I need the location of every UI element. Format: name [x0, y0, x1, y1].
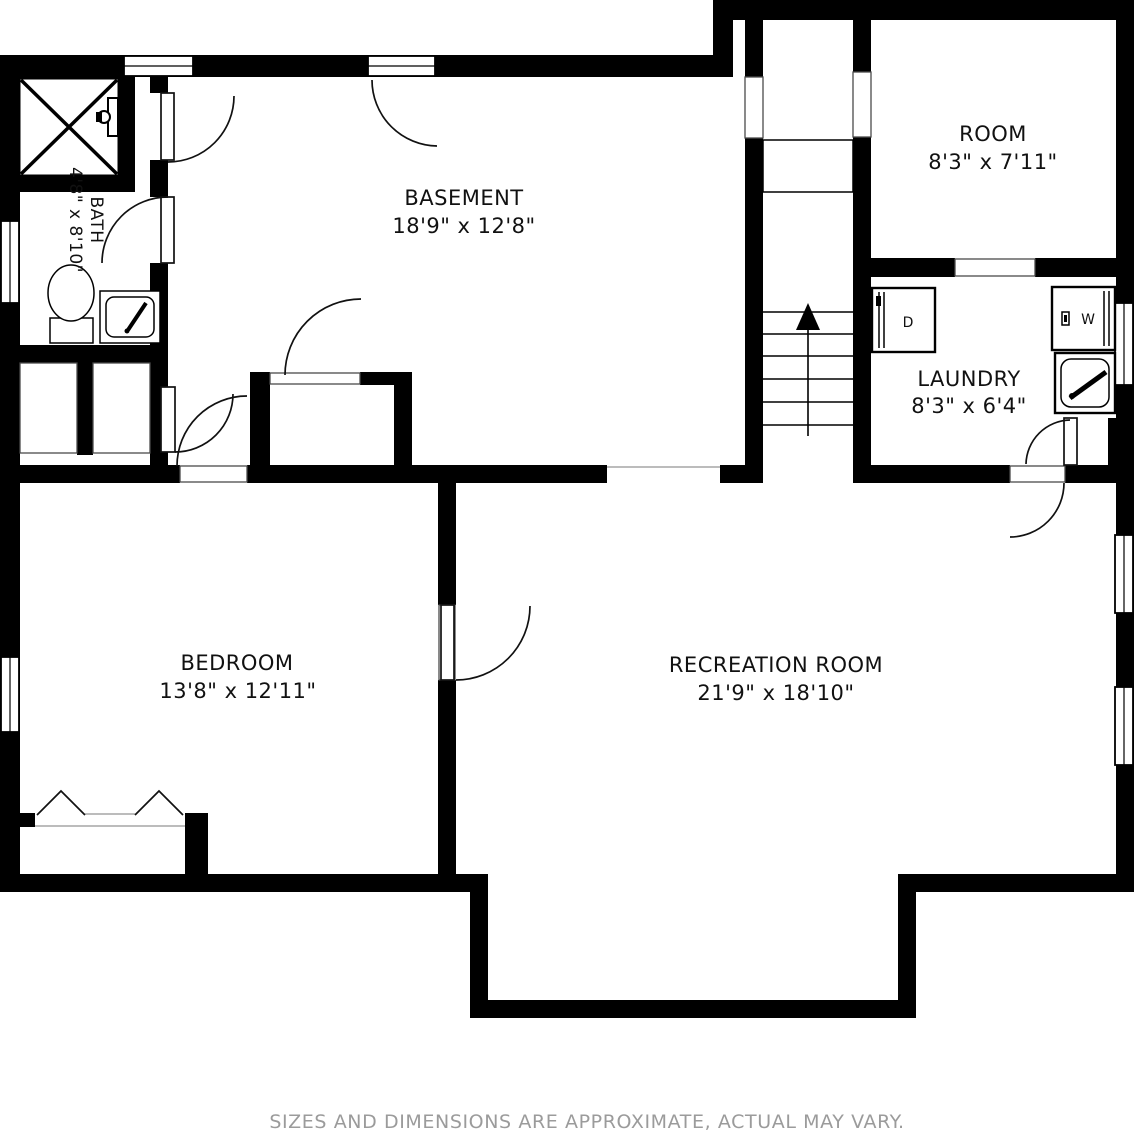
room-label-laundry: LAUNDRY 8'3" x 6'4" — [911, 367, 1027, 418]
door-basement-top — [372, 80, 437, 146]
svg-text:BATH: BATH — [86, 196, 106, 243]
svg-text:BEDROOM: BEDROOM — [180, 651, 293, 675]
opening-closet2-door — [270, 373, 360, 384]
window-basement-1 — [124, 56, 193, 76]
svg-text:8'3" x 7'11": 8'3" x 7'11" — [928, 150, 1057, 174]
svg-text:21'9" x 18'10": 21'9" x 18'10" — [697, 681, 854, 705]
wall-closet-divider — [77, 363, 93, 455]
room-labels: BASEMENT 18'9" x 12'8" ROOM 8'3" x 7'11"… — [65, 122, 1058, 705]
wall-top-step — [713, 0, 733, 77]
stair-landing — [763, 140, 853, 192]
svg-text:4'8" x 8'10": 4'8" x 8'10" — [65, 167, 85, 273]
svg-text:RECREATION ROOM: RECREATION ROOM — [669, 653, 883, 677]
svg-text:ROOM: ROOM — [959, 122, 1027, 146]
svg-text:13'8" x 12'11": 13'8" x 12'11" — [159, 679, 316, 703]
room-label-bedroom: BEDROOM 13'8" x 12'11" — [159, 651, 316, 703]
laundry-sink-icon — [1055, 353, 1115, 413]
room-label-basement: BASEMENT 18'9" x 12'8" — [392, 186, 535, 238]
wall-stair-right — [853, 137, 871, 483]
wall-step-left — [470, 874, 488, 1018]
window-basement-2 — [368, 56, 435, 76]
door-bedroom-entry — [161, 387, 247, 466]
wall-bedroom-right-a — [438, 483, 456, 605]
wall-closet3-right — [185, 813, 208, 874]
wall-step-right — [898, 874, 916, 1018]
door-closet2 — [285, 299, 361, 375]
wall-room-bottom-b — [1035, 258, 1117, 277]
opening-room-laundry — [955, 259, 1035, 276]
window-recreation-right-1 — [1115, 535, 1133, 613]
svg-text:BASEMENT: BASEMENT — [404, 186, 523, 210]
svg-text:LAUNDRY: LAUNDRY — [917, 367, 1020, 391]
stairs — [763, 140, 853, 436]
wall-stair-left-top — [745, 20, 763, 77]
wall-room-bottom-a — [853, 258, 955, 277]
svg-text:18'9" x 12'8": 18'9" x 12'8" — [392, 214, 535, 238]
wall-laundry-bottom-b — [1065, 465, 1134, 483]
room-label-recreation: RECREATION ROOM 21'9" x 18'10" — [669, 653, 883, 705]
opening-stair-right — [853, 72, 871, 137]
wall-bottom — [470, 1000, 914, 1018]
bifold-closet — [35, 791, 185, 826]
wall-closet3-stub — [18, 813, 35, 827]
opening-bedroom-door — [180, 466, 247, 482]
wall-top-right — [713, 0, 1134, 20]
door-laundry-outer — [1010, 483, 1064, 537]
opening-laundry-door — [1010, 466, 1065, 482]
floor-plan: D W — [0, 0, 1134, 1137]
wall-closet2-left — [250, 372, 270, 465]
wall-laundry-bottom-a — [853, 465, 1010, 483]
shower-icon — [18, 77, 120, 177]
window-recreation-right-2 — [1115, 687, 1133, 765]
bath-sink-icon — [100, 291, 160, 343]
room-label-room: ROOM 8'3" x 7'11" — [928, 122, 1057, 174]
opening-stair-left — [745, 77, 763, 138]
door-laundry-inner — [1026, 418, 1077, 465]
washer-icon: W — [1052, 287, 1115, 350]
washer-label: W — [1081, 312, 1095, 328]
window-bath-left — [1, 221, 19, 303]
door-bath-lower — [102, 197, 174, 263]
wall-bedroom-bottom — [0, 874, 486, 892]
window-laundry-right — [1115, 303, 1133, 385]
stair-up-arrow-icon — [796, 303, 820, 330]
wall-stair-right-top — [853, 20, 871, 72]
dryer-label: D — [903, 315, 914, 331]
wall-bottom-right — [898, 874, 1134, 892]
svg-text:8'3" x 6'4": 8'3" x 6'4" — [911, 394, 1027, 418]
window-bedroom-left — [1, 657, 19, 732]
wall-basement-bottom-b — [247, 465, 607, 483]
door-bath-upper — [161, 93, 234, 162]
disclaimer-text: SIZES AND DIMENSIONS ARE APPROXIMATE, AC… — [269, 1111, 904, 1133]
wall-stair-left — [745, 138, 763, 483]
wall-bedroom-right-b — [438, 680, 456, 874]
wall-closet2-right — [394, 372, 412, 465]
toilet-icon — [48, 265, 94, 343]
dryer-icon: D — [872, 288, 935, 352]
door-bedroom-side — [441, 605, 530, 680]
wall-bath-right-b — [150, 160, 168, 197]
wall-laundry-jamb — [1108, 418, 1134, 465]
wall-bath-bottom — [0, 345, 168, 363]
wall-basement-bottom-a — [0, 465, 180, 483]
wall-top-left — [0, 55, 732, 77]
